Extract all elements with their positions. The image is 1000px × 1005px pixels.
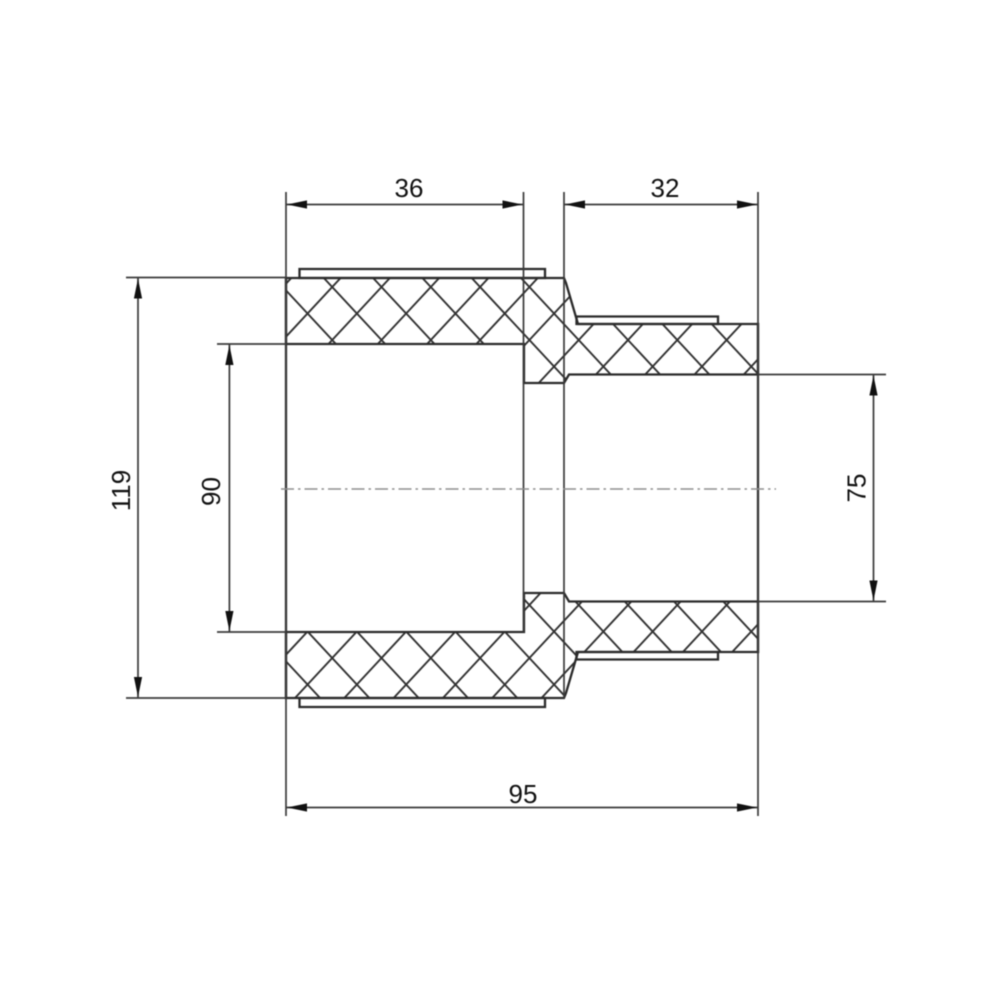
svg-text:32: 32 [651, 173, 680, 203]
svg-text:90: 90 [196, 477, 226, 506]
svg-text:119: 119 [106, 470, 136, 511]
svg-text:36: 36 [395, 173, 424, 203]
svg-text:75: 75 [842, 474, 872, 503]
svg-text:95: 95 [509, 779, 538, 809]
